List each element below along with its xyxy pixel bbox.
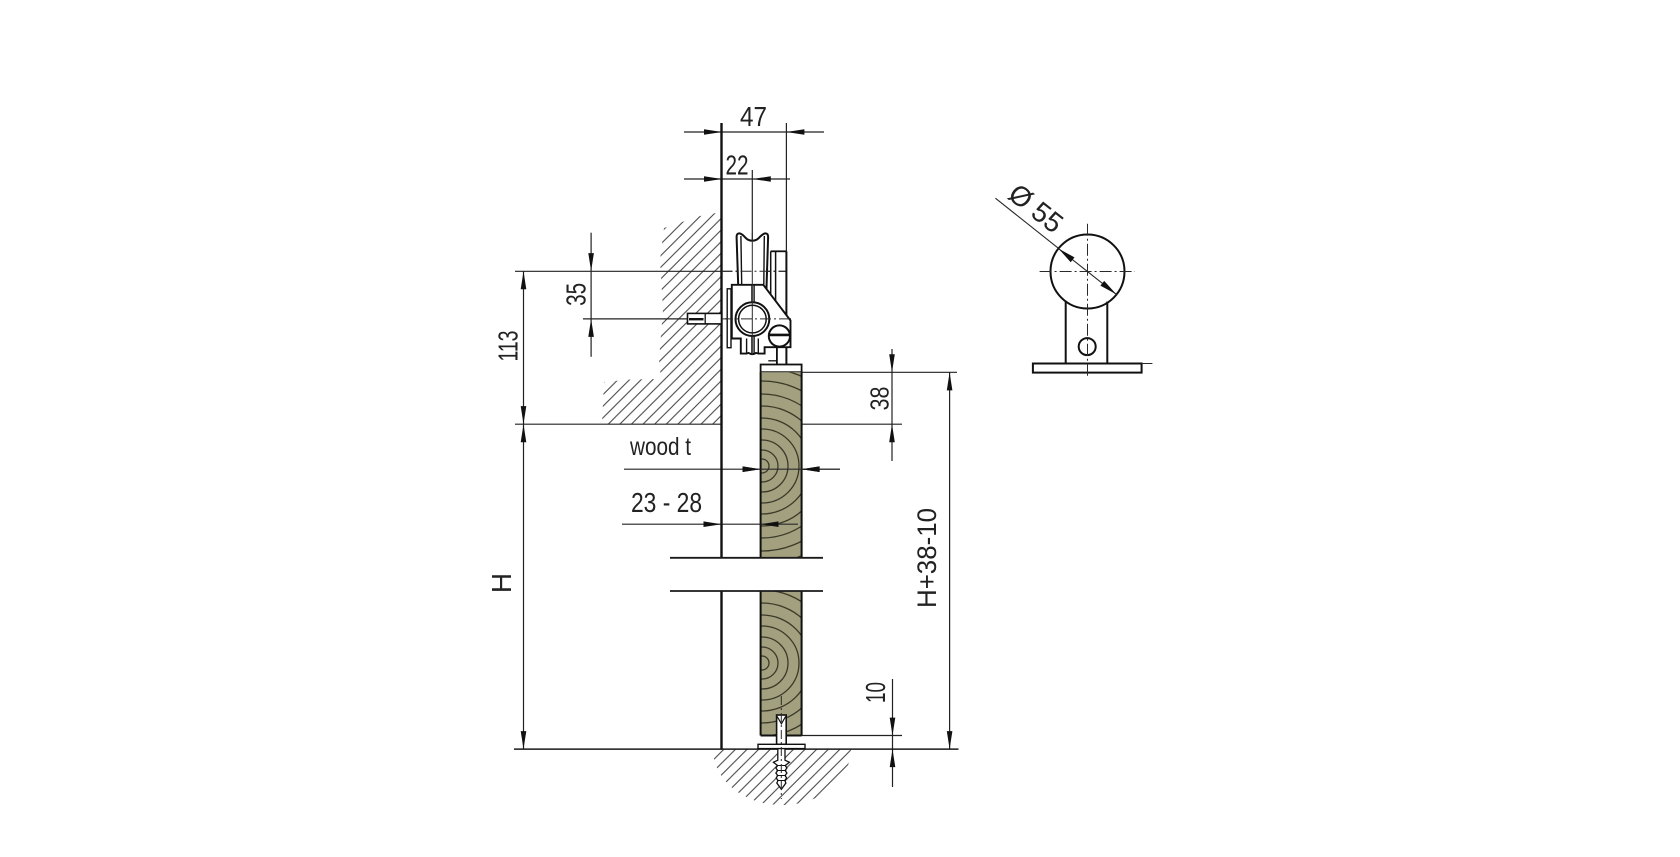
svg-text:H+38-10: H+38-10	[912, 508, 942, 608]
svg-text:113: 113	[493, 331, 524, 362]
svg-text:23 - 28: 23 - 28	[631, 487, 702, 518]
svg-text:10: 10	[860, 682, 891, 703]
svg-text:wood t: wood t	[629, 433, 691, 461]
svg-text:H: H	[486, 573, 517, 593]
svg-text:47: 47	[740, 101, 767, 132]
svg-text:35: 35	[561, 283, 592, 306]
svg-text:38: 38	[865, 387, 895, 411]
svg-text:22: 22	[726, 150, 749, 181]
